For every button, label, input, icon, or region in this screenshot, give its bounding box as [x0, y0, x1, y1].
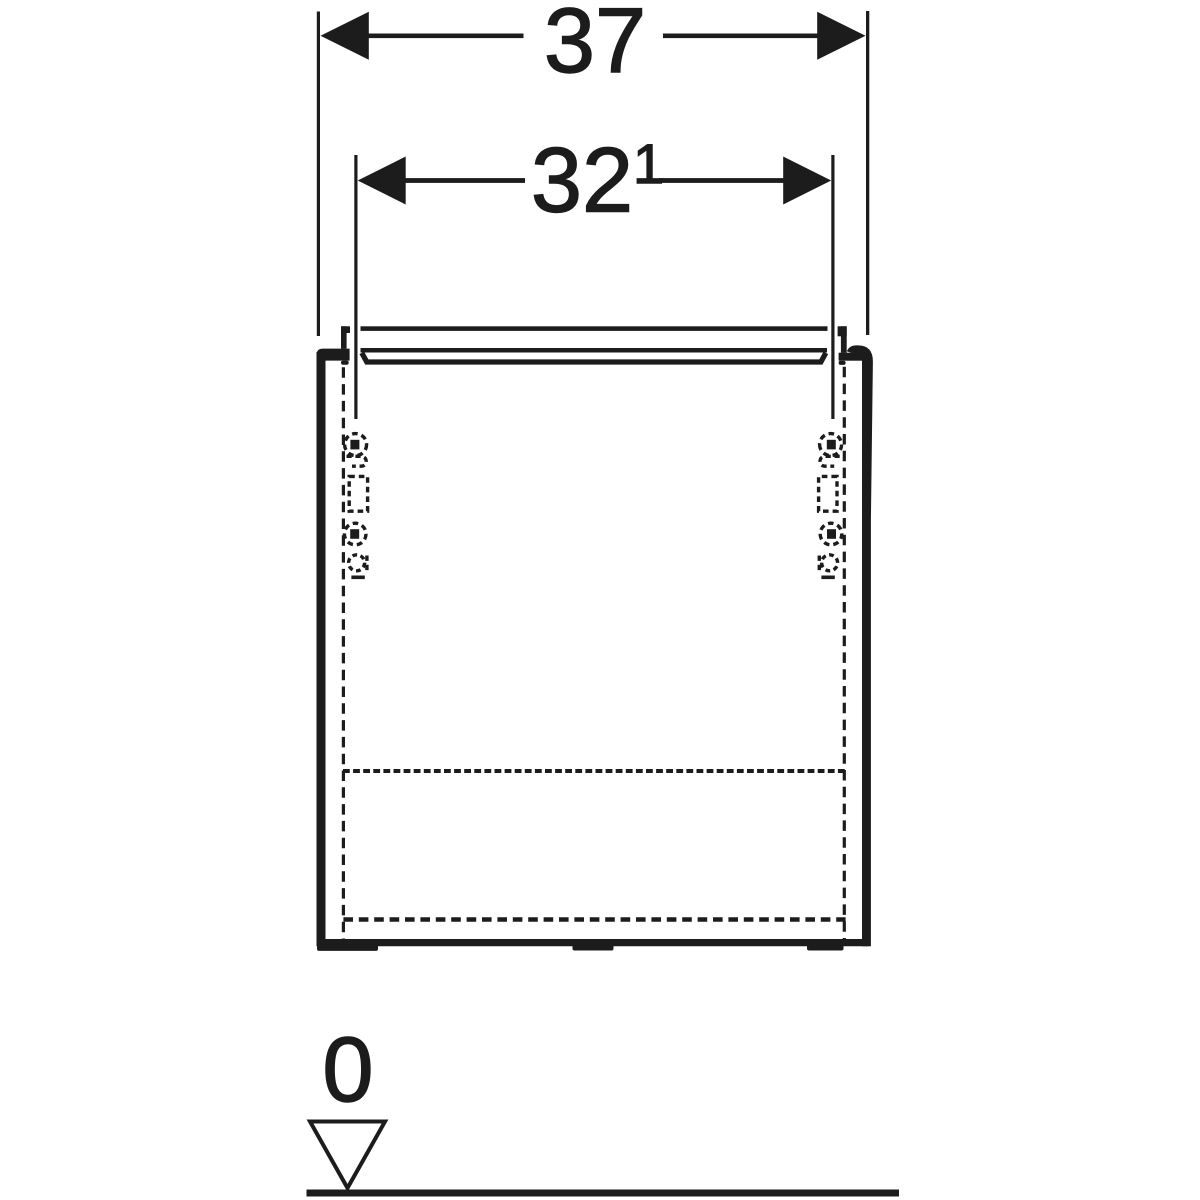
svg-text:1: 1 [633, 132, 664, 195]
svg-text:32: 32 [531, 130, 633, 232]
svg-text:37: 37 [544, 0, 646, 92]
svg-text:0: 0 [322, 1019, 373, 1121]
